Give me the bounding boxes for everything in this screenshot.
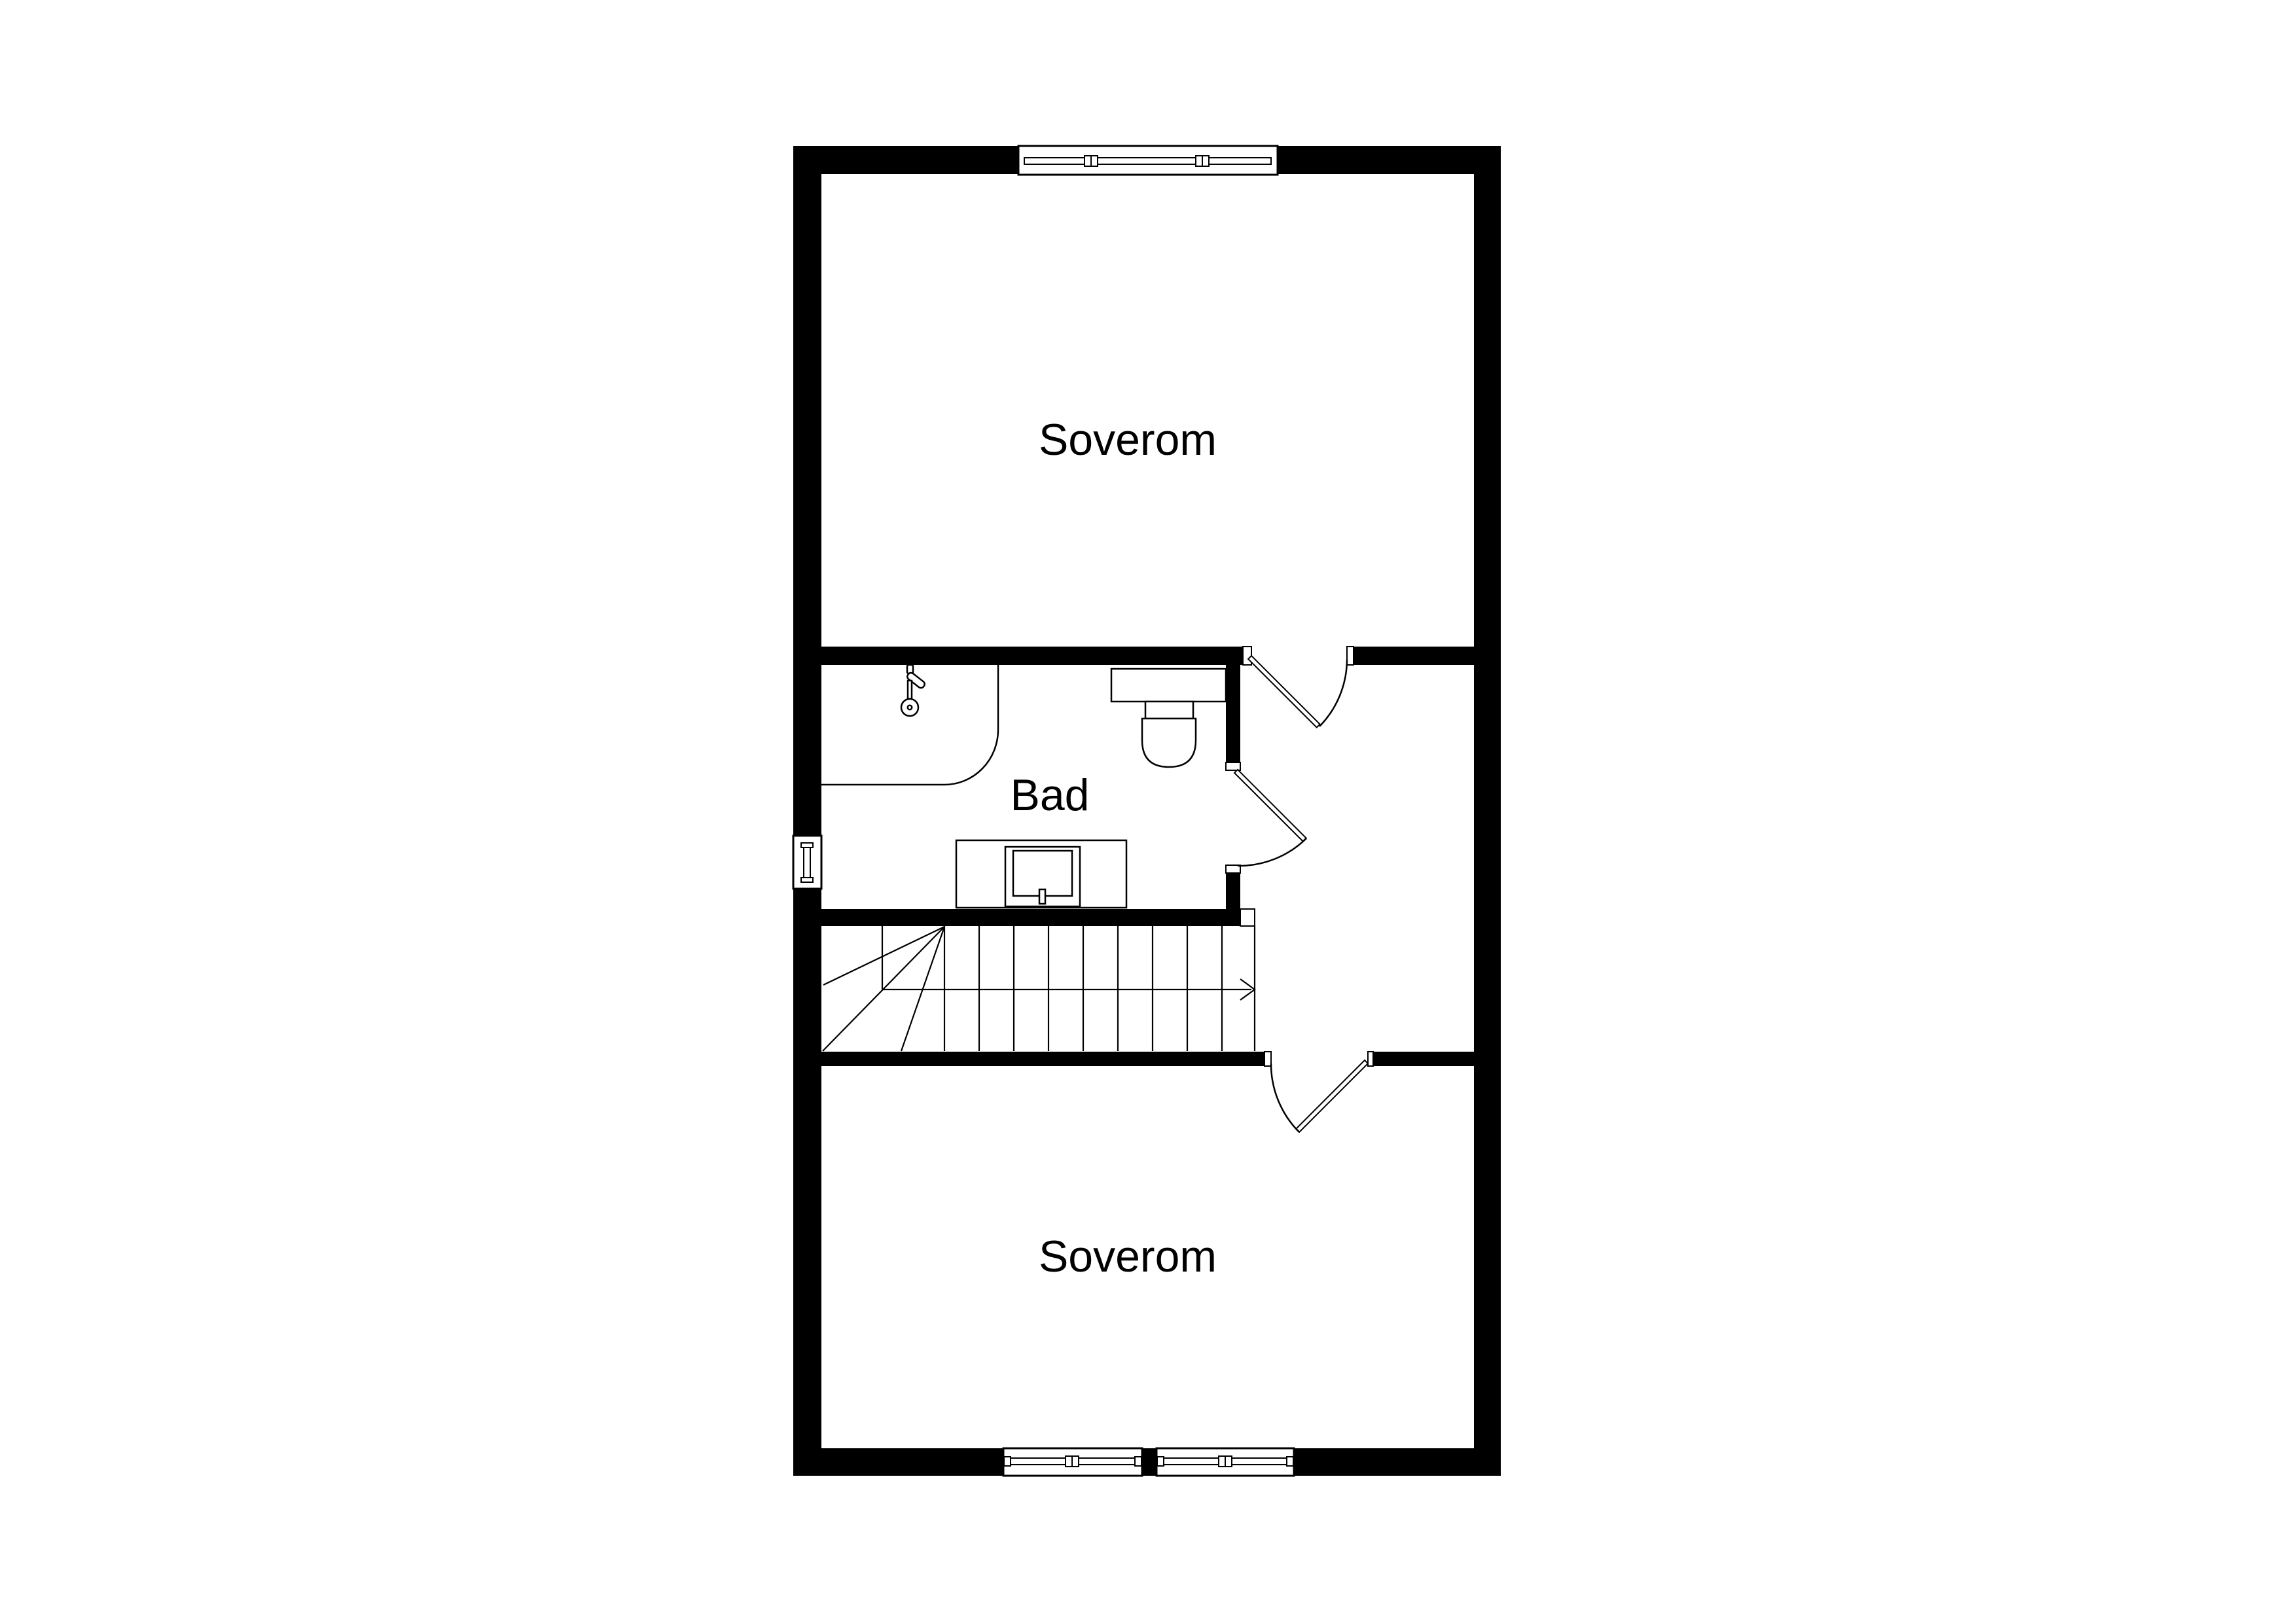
door-bathroom bbox=[1234, 770, 1306, 866]
shower-head-icon bbox=[901, 665, 926, 716]
window-mullion bbox=[1196, 156, 1202, 166]
room-label-bedroom-bottom: Soverom bbox=[1039, 1232, 1217, 1281]
door-leaf bbox=[1234, 770, 1306, 842]
wall-divider-right bbox=[1347, 647, 1474, 665]
window-mullion bbox=[1202, 156, 1209, 166]
window-glass-band bbox=[1024, 158, 1271, 164]
wall-hall-bath-upper bbox=[1226, 665, 1240, 762]
jamb-bedroom2-door-left bbox=[1265, 1052, 1271, 1066]
staircase bbox=[823, 926, 1255, 1051]
window-mullion bbox=[1225, 1456, 1232, 1467]
window-bottom-1 bbox=[1003, 1448, 1142, 1476]
room-label-bedroom-top: Soverom bbox=[1039, 415, 1217, 465]
wall-top-right bbox=[1278, 146, 1501, 174]
interior-walls bbox=[793, 647, 1474, 1066]
toilet-icon bbox=[1111, 669, 1226, 767]
window-mullion bbox=[801, 843, 813, 847]
floor-plan-drawing: Soverom Bad Soverom bbox=[0, 0, 2296, 1623]
door-leaf bbox=[1296, 1060, 1368, 1132]
wall-left-upper bbox=[793, 146, 821, 836]
shower-corner-arc bbox=[944, 730, 998, 785]
door-bedroom-bottom bbox=[1271, 1060, 1368, 1132]
wall-right bbox=[1474, 146, 1501, 1476]
stair-winder-line bbox=[823, 927, 944, 985]
jamb-bedroom2-door-right bbox=[1368, 1052, 1373, 1066]
window-mullion bbox=[1219, 1456, 1225, 1467]
jamb-bedroom1-door-right bbox=[1347, 647, 1354, 665]
cap-stair-corner bbox=[1240, 909, 1255, 926]
window-glass-band bbox=[804, 843, 810, 882]
wall-stair-bottom-right bbox=[1373, 1052, 1474, 1066]
wall-divider-left bbox=[793, 647, 1243, 665]
window-mullion bbox=[1072, 1456, 1079, 1467]
wall-top-left bbox=[793, 146, 1018, 174]
window-mullion bbox=[1135, 1457, 1141, 1466]
jamb-bedroom1-door-left bbox=[1243, 647, 1251, 665]
wall-bottom-pier bbox=[1142, 1448, 1157, 1476]
room-label-bathroom: Bad bbox=[1011, 770, 1090, 820]
shower-arm bbox=[908, 681, 912, 699]
window-mullion bbox=[1287, 1457, 1293, 1466]
toilet-counter bbox=[1111, 669, 1226, 702]
door-bedroom-top bbox=[1248, 656, 1347, 728]
wall-left-lower bbox=[793, 889, 821, 1476]
window-mullion bbox=[1004, 1457, 1011, 1466]
door-leaf bbox=[1248, 656, 1320, 728]
wall-bottom-right bbox=[1294, 1448, 1501, 1476]
wall-bath-bottom bbox=[793, 909, 1240, 926]
window-mullion bbox=[1066, 1456, 1072, 1467]
toilet-bowl bbox=[1142, 719, 1196, 767]
door-swing-arc bbox=[1271, 1063, 1299, 1132]
door-swing-arc bbox=[1319, 660, 1347, 726]
sink-vanity-icon bbox=[956, 840, 1126, 908]
shower-nozzle bbox=[908, 705, 912, 709]
wall-bottom-left bbox=[793, 1448, 1003, 1476]
sink-tap bbox=[1039, 889, 1045, 904]
jamb-bath-door-top bbox=[1226, 762, 1240, 770]
window-mullion bbox=[1157, 1457, 1164, 1466]
window-mullion bbox=[1091, 156, 1098, 166]
floor-plan-canvas: Soverom Bad Soverom bbox=[0, 0, 2296, 1623]
door-swing-arc bbox=[1238, 838, 1306, 866]
window-bottom-2 bbox=[1157, 1448, 1294, 1476]
wall-stair-bottom-left bbox=[793, 1052, 1265, 1066]
window-mullion bbox=[1085, 156, 1091, 166]
window-left-bath bbox=[793, 836, 821, 889]
wall-hall-bath-lower bbox=[1226, 873, 1240, 909]
toilet-tank bbox=[1145, 702, 1193, 719]
window-mullion bbox=[801, 878, 813, 882]
window-top bbox=[1018, 146, 1278, 175]
